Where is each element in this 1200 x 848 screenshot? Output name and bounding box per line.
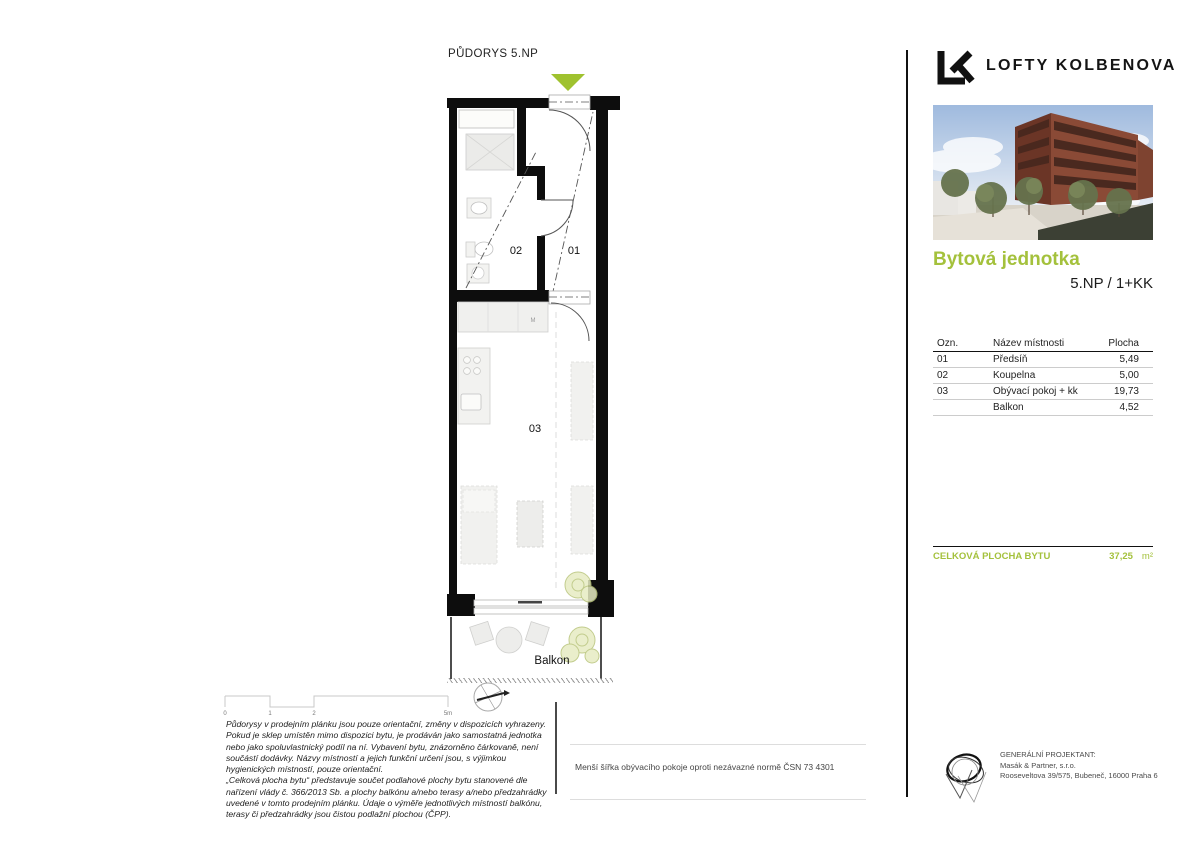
balcony-edge-hatch [447, 678, 613, 683]
table-row: 01 Předsíň 5,49 [933, 352, 1153, 368]
disclaimer-text: Půdorysy v prodejním plánku jsou pouze o… [226, 719, 550, 821]
cell-area: 19,73 [1093, 386, 1153, 397]
total-area-value: 37,25 [1109, 551, 1133, 562]
brand-logo-icon [934, 48, 978, 88]
balcony-label: Balkon [534, 655, 569, 667]
cell-name: Koupelna [993, 370, 1093, 381]
bathroom-fixtures [459, 110, 514, 283]
panel-divider [906, 50, 908, 797]
room-label-01: 01 [568, 245, 580, 257]
unit-heading: Bytová jednotka [933, 249, 1153, 271]
table-row: 02 Koupelna 5,00 [933, 368, 1153, 384]
col-header-area: Plocha [1093, 338, 1153, 349]
cell-name: Předsíň [993, 354, 1093, 365]
disclaimer-paragraph-2: „Celková plocha bytu“ představuje součet… [226, 775, 550, 820]
cell-area: 5,49 [1093, 354, 1153, 365]
cell-area: 5,00 [1093, 370, 1153, 381]
note-rule-top [570, 744, 866, 745]
note-rule-bottom [570, 799, 866, 800]
cell-ozn: 01 [933, 354, 993, 365]
cell-name: Obývací pokoj + kk [993, 386, 1093, 397]
scale-tick: 0 [223, 711, 227, 716]
projektant-label: GENERÁLNÍ PROJEKTANT: [1000, 750, 1158, 761]
room-label-03: 03 [529, 423, 541, 435]
scale-tick: 1 [268, 711, 272, 716]
projektant-address: Rooseveltova 39/575, Bubeneč, 16000 Prah… [1000, 771, 1158, 782]
scale-tick: 2 [312, 711, 316, 716]
projektant-company: Masák & Partner, s.r.o. [1000, 761, 1158, 772]
brand-name: LOFTY KOLBENOVA [986, 57, 1177, 75]
scale-bar: 0 1 2 5m [215, 688, 465, 716]
plan-title: PŮDORYS 5.NP [448, 48, 538, 60]
col-header-ozn: Ozn. [933, 338, 993, 349]
kitchen-label: M [531, 318, 536, 324]
floor-plan-drawing: 02 01 03 M Balkon [430, 60, 630, 720]
total-area-label: CELKOVÁ PLOCHA BYTU [933, 551, 1050, 562]
scale-tick: 5m [444, 711, 452, 716]
total-area-row: CELKOVÁ PLOCHA BYTU 37,25 m² [933, 546, 1153, 562]
rooms-table: Ozn. Název místnosti Plocha 01 Předsíň 5… [933, 336, 1153, 416]
projektant-logo-icon [938, 746, 994, 806]
room-label-02: 02 [510, 245, 522, 257]
cell-area: 4,52 [1093, 402, 1153, 413]
table-row: Balkon 4,52 [933, 400, 1153, 416]
compass-icon [474, 683, 510, 711]
entrance-marker-icon [551, 74, 585, 91]
disclaimer-paragraph-1: Půdorysy v prodejním plánku jsou pouze o… [226, 719, 550, 775]
floor-plan-sheet: PŮDORYS 5.NP [0, 0, 1200, 848]
cell-ozn: 03 [933, 386, 993, 397]
unit-subheading: 5.NP / 1+KK [933, 275, 1153, 292]
cell-ozn: 02 [933, 370, 993, 381]
table-header-row: Ozn. Název místnosti Plocha [933, 336, 1153, 352]
cell-name: Balkon [993, 402, 1093, 413]
balcony-glazing [474, 600, 588, 614]
table-row: 03 Obývací pokoj + kk 19,73 [933, 384, 1153, 400]
building-photo [933, 105, 1153, 240]
col-header-name: Název místnosti [993, 338, 1093, 349]
norm-note: Menší šířka obývacího pokoje oproti nezá… [575, 762, 834, 772]
footer-divider [555, 702, 557, 794]
projektant-info: GENERÁLNÍ PROJEKTANT: Masák & Partner, s… [1000, 750, 1158, 782]
total-area-unit: m² [1142, 551, 1153, 562]
